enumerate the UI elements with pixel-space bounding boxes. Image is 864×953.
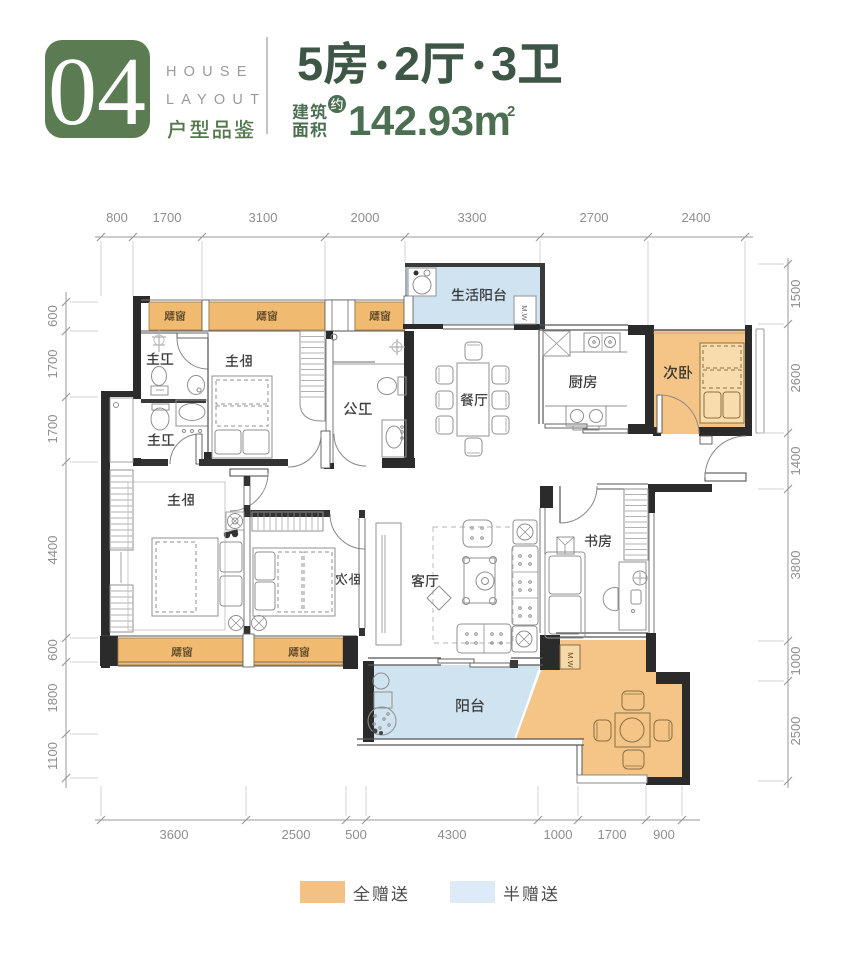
svg-text:1500: 1500 (788, 280, 803, 309)
svg-text:4300: 4300 (438, 827, 467, 842)
svg-text:1000: 1000 (544, 827, 573, 842)
svg-text:1700: 1700 (598, 827, 627, 842)
svg-text:900: 900 (653, 827, 675, 842)
svg-text:04: 04 (48, 38, 146, 146)
svg-text:2: 2 (507, 103, 515, 120)
svg-text:600: 600 (45, 639, 60, 661)
svg-text:1700: 1700 (45, 415, 60, 444)
svg-text:1700: 1700 (45, 350, 60, 379)
svg-text:1700: 1700 (153, 210, 182, 225)
svg-text:3300: 3300 (458, 210, 487, 225)
svg-text:HOUSE: HOUSE (166, 64, 254, 80)
svg-text:1400: 1400 (788, 447, 803, 476)
svg-text:800: 800 (106, 210, 128, 225)
svg-text:1000: 1000 (788, 647, 803, 676)
svg-text:2500: 2500 (788, 717, 803, 746)
svg-text:2700: 2700 (580, 210, 609, 225)
svg-text:1100: 1100 (45, 742, 60, 770)
svg-text:4400: 4400 (45, 536, 60, 565)
svg-text:3: 3 (491, 37, 517, 90)
svg-text:2: 2 (394, 37, 420, 90)
svg-text:2600: 2600 (788, 364, 803, 393)
svg-text:500: 500 (345, 827, 367, 842)
svg-text:142.93m: 142.93m (348, 97, 510, 144)
svg-text:2500: 2500 (282, 827, 311, 842)
svg-text:3100: 3100 (249, 210, 278, 225)
svg-text:M.W: M.W (566, 652, 575, 668)
svg-text:2000: 2000 (351, 210, 380, 225)
svg-text:600: 600 (45, 305, 60, 327)
svg-text:1800: 1800 (45, 684, 60, 713)
svg-text:LAYOUT: LAYOUT (166, 92, 266, 108)
svg-text:3600: 3600 (160, 827, 189, 842)
svg-text:2400: 2400 (682, 210, 711, 225)
svg-text:M.W: M.W (520, 305, 529, 321)
svg-text:3800: 3800 (788, 551, 803, 580)
svg-text:5: 5 (297, 37, 323, 90)
